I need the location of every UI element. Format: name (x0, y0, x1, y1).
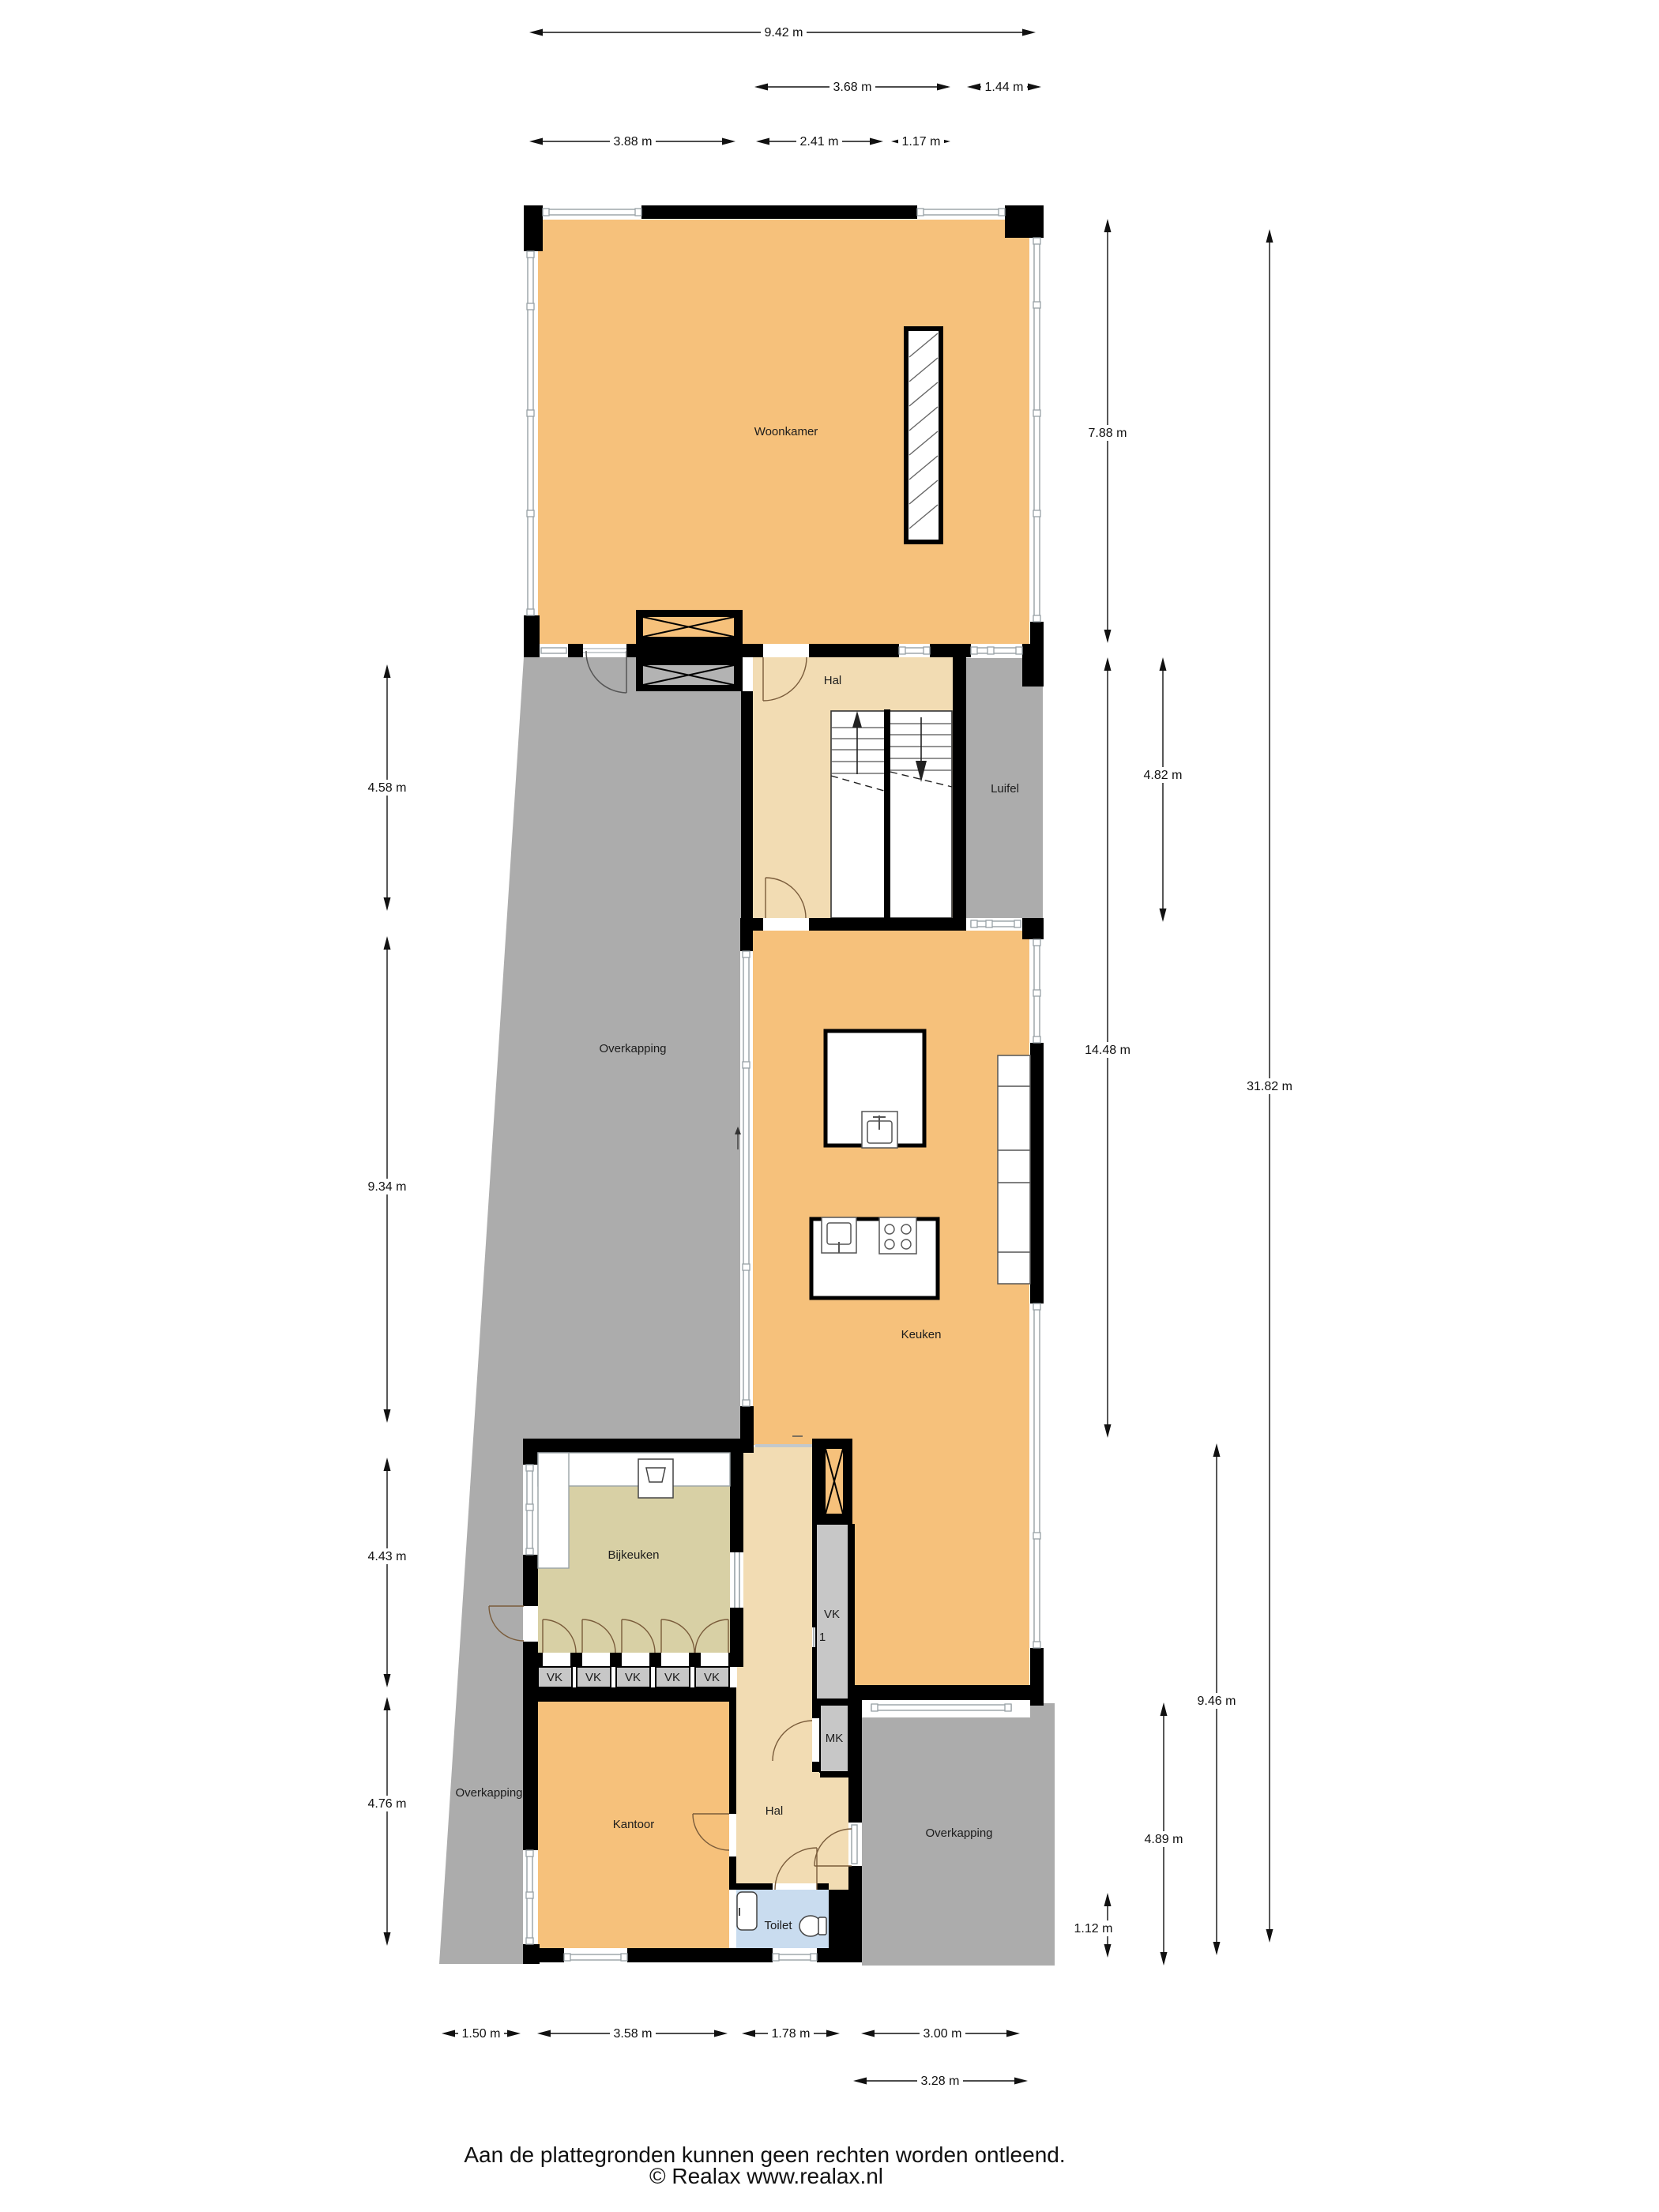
svg-text:7.88 m: 7.88 m (1089, 427, 1127, 440)
svg-text:Bijkeuken: Bijkeuken (608, 1548, 659, 1562)
svg-text:© Realax www.realax.nl: © Realax www.realax.nl (649, 2164, 883, 2188)
svg-text:9.46 m: 9.46 m (1198, 1695, 1236, 1708)
svg-text:1.44 m: 1.44 m (985, 81, 1024, 94)
svg-text:4.58 m: 4.58 m (368, 781, 407, 795)
svg-text:MK: MK (826, 1732, 844, 1745)
svg-text:Keuken: Keuken (901, 1328, 942, 1341)
svg-text:Woonkamer: Woonkamer (754, 425, 818, 438)
svg-text:VK: VK (704, 1671, 720, 1684)
svg-text:4.76 m: 4.76 m (368, 1797, 407, 1811)
svg-text:VK: VK (547, 1671, 562, 1684)
svg-text:1.50 m: 1.50 m (462, 2027, 501, 2041)
svg-text:2.41 m: 2.41 m (800, 135, 839, 149)
svg-text:Overkapping: Overkapping (925, 1826, 992, 1840)
svg-text:Luifel: Luifel (991, 782, 1019, 796)
svg-text:3.58 m: 3.58 m (614, 2027, 653, 2041)
svg-text:VK: VK (824, 1608, 840, 1621)
svg-text:3.00 m: 3.00 m (924, 2027, 962, 2041)
svg-text:Overkapping: Overkapping (455, 1786, 522, 1800)
svg-text:1.17 m: 1.17 m (902, 135, 941, 149)
svg-text:1: 1 (819, 1631, 826, 1644)
svg-text:VK: VK (625, 1671, 641, 1684)
svg-text:4.82 m: 4.82 m (1144, 769, 1183, 782)
svg-text:3.28 m: 3.28 m (921, 2075, 960, 2088)
svg-text:31.82 m: 31.82 m (1247, 1080, 1292, 1093)
svg-text:Kantoor: Kantoor (613, 1818, 655, 1831)
svg-text:VK: VK (664, 1671, 680, 1684)
svg-text:1.78 m: 1.78 m (772, 2027, 811, 2041)
svg-text:4.89 m: 4.89 m (1145, 1833, 1183, 1846)
svg-text:9.42 m: 9.42 m (765, 26, 803, 39)
svg-text:Hal: Hal (824, 674, 842, 687)
svg-text:14.48 m: 14.48 m (1085, 1044, 1130, 1057)
svg-text:1.12 m: 1.12 m (1074, 1922, 1113, 1935)
svg-text:4.43 m: 4.43 m (368, 1550, 407, 1563)
svg-text:9.34 m: 9.34 m (368, 1180, 407, 1194)
svg-text:Overkapping: Overkapping (599, 1042, 666, 1055)
svg-text:3.68 m: 3.68 m (833, 81, 872, 94)
svg-text:VK: VK (585, 1671, 601, 1684)
svg-text:Toilet: Toilet (764, 1919, 792, 1932)
svg-text:3.88 m: 3.88 m (614, 135, 653, 149)
svg-text:Hal: Hal (766, 1804, 784, 1818)
